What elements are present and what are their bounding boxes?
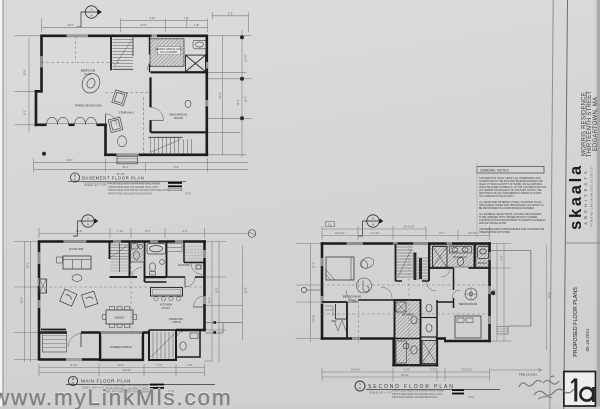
svg-text:PO BOX 432, CANTON, MA 02021 7: PO BOX 432, CANTON, MA 02021 781 555 012… — [591, 166, 594, 227]
svg-text:S: S — [359, 382, 361, 386]
svg-text:+ BATH: + BATH — [171, 320, 181, 324]
svg-text:MAIN FLOOR PLAN: MAIN FLOOR PLAN — [81, 379, 131, 384]
svg-text:6'-8": 6'-8" — [500, 255, 504, 260]
svg-text:10'-2": 10'-2" — [122, 165, 129, 169]
svg-text:BATHRM 2: BATHRM 2 — [453, 255, 467, 259]
svg-text:9'-10": 9'-10" — [71, 363, 78, 367]
svg-text:ROOM: ROOM — [174, 116, 183, 120]
svg-text:7'-4 1/2": 7'-4 1/2" — [370, 231, 380, 235]
svg-text:BATH 3: BATH 3 — [478, 261, 488, 265]
svg-text:8'-6 1/2": 8'-6 1/2" — [335, 231, 345, 235]
svg-text:PROPOSED FLOOR PLANS: PROPOSED FLOOR PLANS — [573, 287, 579, 357]
svg-text:13'-2": 13'-2" — [244, 96, 248, 103]
svg-text:8'-3 1/2": 8'-3 1/2" — [468, 231, 478, 235]
svg-text:10'-3 1/2": 10'-3 1/2" — [462, 368, 473, 372]
svg-text:8'-4 1/2": 8'-4 1/2" — [351, 368, 361, 372]
svg-text:30'-2": 30'-2" — [218, 92, 222, 99]
svg-text:N.TS: N.TS — [468, 395, 474, 399]
svg-text:N.TS: N.TS — [185, 191, 191, 195]
svg-text:BEDROOM #3: BEDROOM #3 — [459, 302, 478, 306]
svg-text:N: N — [87, 223, 89, 227]
svg-text:GENERAL NOTES: GENERAL NOTES — [480, 169, 509, 173]
svg-text:8'-1": 8'-1" — [23, 110, 27, 115]
svg-text:BATHRM: BATHRM — [402, 313, 414, 317]
svg-text:B: B — [74, 174, 76, 178]
svg-text:A: A — [87, 217, 89, 221]
svg-text:29'-6": 29'-6" — [208, 297, 212, 304]
svg-text:FRONT AND SEALED FOUNDATION: FRONT AND SEALED FOUNDATION — [108, 191, 152, 195]
svg-text:05.19.2021: 05.19.2021 — [585, 328, 590, 351]
svg-text:6'-2": 6'-2" — [430, 368, 435, 372]
svg-text:5'-2": 5'-2" — [228, 12, 233, 16]
svg-text:12'-6": 12'-6" — [244, 287, 248, 294]
svg-text:www.myLinkMls.com: www.myLinkMls.com — [0, 385, 232, 409]
svg-text:EDGARTOWN, MA: EDGARTOWN, MA — [593, 97, 599, 151]
svg-text:10'-4 1/2": 10'-4 1/2" — [404, 225, 415, 229]
svg-text:N: N — [91, 14, 93, 18]
svg-text:EL: EL — [328, 223, 332, 227]
svg-text:BASEMENT FLOOR PLAN: BASEMENT FLOOR PLAN — [82, 176, 144, 181]
svg-text:10'-0": 10'-0" — [118, 363, 125, 367]
svg-text:8'-2": 8'-2" — [145, 229, 150, 233]
svg-text:24'-6": 24'-6" — [67, 23, 74, 27]
svg-text:5'-8": 5'-8" — [187, 363, 192, 367]
svg-text:6'-7": 6'-7" — [439, 231, 444, 235]
svg-text:8'-0": 8'-0" — [174, 165, 179, 169]
svg-text:4'-10": 4'-10" — [149, 16, 156, 20]
svg-text:SCREEN PORCH: SCREEN PORCH — [110, 345, 133, 349]
svg-text:14'-6": 14'-6" — [76, 229, 83, 233]
svg-text:34'-10": 34'-10" — [401, 373, 409, 377]
svg-text:7'-10": 7'-10" — [117, 229, 124, 233]
svg-text:11'-0": 11'-0" — [140, 23, 146, 27]
svg-text:5'-11": 5'-11" — [404, 368, 410, 372]
svg-text:W/ LAUNDRY: W/ LAUNDRY — [160, 50, 178, 54]
svg-text:STAIR HALL: STAIR HALL — [119, 110, 135, 114]
svg-text:15'-1": 15'-1" — [26, 262, 30, 269]
svg-text:12'x14': 12'x14' — [162, 306, 171, 310]
svg-text:LIVING RM: LIVING RM — [69, 247, 84, 251]
svg-text:1'-8": 1'-8" — [194, 23, 199, 27]
svg-text:12'x13': 12'x13' — [348, 298, 357, 302]
svg-text:N: N — [372, 223, 374, 227]
svg-text:A: A — [90, 8, 92, 12]
svg-text:12'-4": 12'-4" — [236, 99, 240, 106]
svg-text:26'-0": 26'-0" — [23, 69, 27, 76]
svg-text:A: A — [372, 217, 374, 221]
svg-text:OF CONSTRUCTION ACTIVITY.: OF CONSTRUCTION ACTIVITY. — [479, 195, 515, 198]
svg-text:SCALE: 1/4" = 1'-0": SCALE: 1/4" = 1'-0" — [84, 183, 107, 187]
svg-text:OBSERVATION ACTIVITIES.: OBSERVATION ACTIVITIES. — [479, 231, 511, 234]
svg-text:34'-10": 34'-10" — [123, 368, 131, 372]
svg-text:NEW INSULATED DOORS/WINDOWS: NEW INSULATED DOORS/WINDOWS — [392, 395, 437, 399]
svg-text:SCALE: 1/4" = 1'-0": SCALE: 1/4" = 1'-0" — [369, 390, 392, 394]
svg-text:26'-8": 26'-8" — [548, 292, 552, 299]
svg-text:AND/OR INSTALLATION.: AND/OR INSTALLATION. — [479, 222, 507, 225]
svg-text:MUD RM: MUD RM — [178, 263, 190, 267]
svg-text:13'-10": 13'-10" — [244, 54, 248, 62]
svg-text:11'-2": 11'-2" — [312, 262, 316, 268]
svg-text:ARCHITECTS: ARCHITECTS — [583, 168, 588, 225]
svg-text:14'-6": 14'-6" — [66, 158, 73, 162]
svg-text:FEB 14 2021: FEB 14 2021 — [519, 373, 537, 377]
svg-text:6'-4": 6'-4" — [157, 363, 162, 367]
svg-text:WIC: WIC — [331, 319, 336, 323]
svg-text:BE PERFORMED IN A WORKMANLIKE: BE PERFORMED IN A WORKMANLIKE MANNER. — [479, 207, 535, 210]
svg-text:7'-2": 7'-2" — [184, 16, 189, 20]
svg-text:12'-2": 12'-2" — [215, 287, 219, 294]
svg-text:30'-2": 30'-2" — [20, 297, 24, 304]
svg-text:DINING: DINING — [115, 316, 125, 320]
svg-text:14'-10": 14'-10" — [312, 314, 316, 322]
svg-text:9'-6": 9'-6" — [182, 229, 187, 233]
svg-text:THREE SEASON RM.: THREE SEASON RM. — [75, 103, 103, 107]
